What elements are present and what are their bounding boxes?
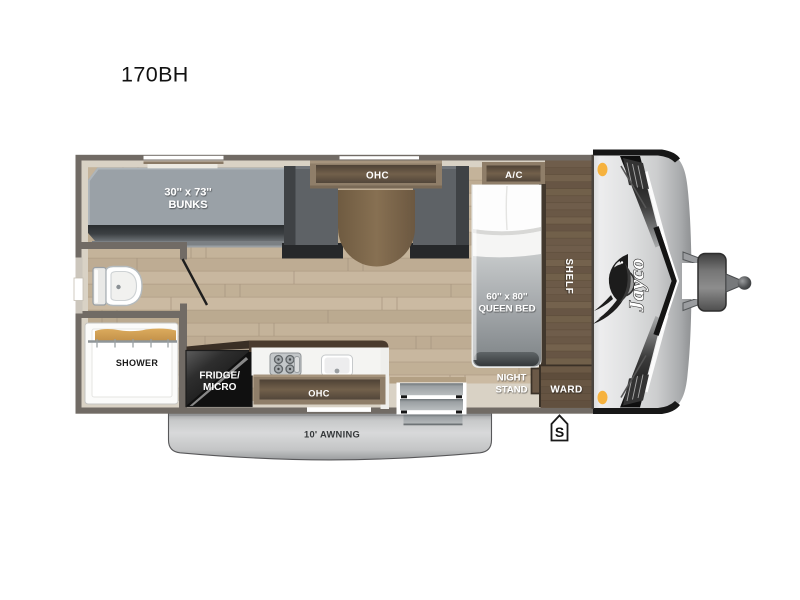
svg-text:STAND: STAND xyxy=(495,384,527,395)
svg-text:BUNKS: BUNKS xyxy=(168,199,207,211)
svg-text:WARD: WARD xyxy=(550,384,582,395)
svg-text:OHC: OHC xyxy=(366,170,389,181)
svg-text:A/C: A/C xyxy=(505,170,523,181)
svg-text:30'' x 73'': 30'' x 73'' xyxy=(164,187,212,199)
svg-text:170BH: 170BH xyxy=(121,63,189,87)
svg-text:MICRO: MICRO xyxy=(203,382,237,393)
svg-text:FRIDGE/: FRIDGE/ xyxy=(199,370,240,381)
svg-text:OHC: OHC xyxy=(308,388,330,398)
svg-text:QUEEN BED: QUEEN BED xyxy=(478,304,535,315)
svg-text:NIGHT: NIGHT xyxy=(497,372,527,383)
svg-text:10' AWNING: 10' AWNING xyxy=(304,429,360,439)
svg-text:SHOWER: SHOWER xyxy=(116,358,159,368)
svg-text:60'' x 80'': 60'' x 80'' xyxy=(486,292,527,303)
svg-text:SHELF: SHELF xyxy=(563,258,574,294)
svg-text:Jayco: Jayco xyxy=(625,258,649,313)
svg-text:S: S xyxy=(555,424,564,440)
